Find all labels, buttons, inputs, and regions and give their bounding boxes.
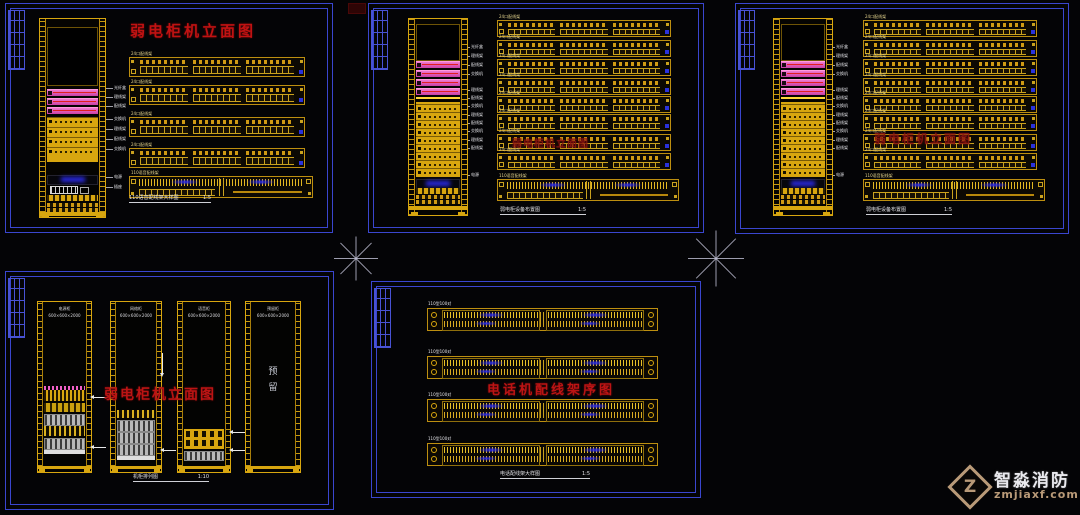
leader-line bbox=[106, 88, 113, 89]
mount-hole-icon bbox=[648, 321, 654, 327]
arrow-head-icon bbox=[229, 430, 233, 434]
leader-line bbox=[106, 106, 113, 107]
cabinet-dims: 600×600×2000 bbox=[38, 313, 91, 318]
watermark-domain: zmjiaxf.com bbox=[994, 488, 1079, 501]
mount-hole-icon bbox=[648, 456, 654, 462]
center-divider bbox=[586, 181, 587, 199]
vent-row bbox=[47, 203, 98, 207]
device-mark bbox=[783, 155, 786, 158]
panel-blue-tag bbox=[299, 70, 303, 74]
blue-smudge bbox=[979, 182, 1009, 188]
device-mark bbox=[783, 123, 786, 126]
port-row-top bbox=[613, 117, 660, 121]
equipment-row-sep bbox=[781, 128, 825, 129]
blue-smudge bbox=[613, 182, 643, 188]
block-half bbox=[442, 358, 540, 379]
device-mark bbox=[783, 171, 786, 174]
leader-line bbox=[833, 90, 835, 91]
port-group bbox=[979, 137, 1026, 148]
port-row-bottom bbox=[979, 162, 1026, 168]
equipment-row-sep bbox=[416, 120, 460, 121]
cable-bar bbox=[966, 194, 1034, 196]
patch-panel bbox=[497, 20, 671, 37]
device-text-marks bbox=[789, 156, 822, 158]
caption-scale: 1:5 bbox=[944, 207, 952, 213]
patch-panel bbox=[497, 78, 671, 95]
port-row-bottom bbox=[926, 162, 973, 168]
port-row-top bbox=[613, 81, 660, 85]
port-groups bbox=[874, 62, 1026, 73]
port-row-bottom bbox=[979, 105, 1026, 111]
port-row-top bbox=[560, 43, 607, 47]
rack-rail-right bbox=[461, 19, 467, 215]
module-red-line bbox=[422, 91, 458, 92]
viewport-top-middle: 24口配线架24口配线架24口配线架24口配线架24口配线架24口配线架24口配… bbox=[368, 3, 704, 233]
panel-end-cap bbox=[865, 162, 870, 167]
drawing-title-p4: 弱电柜机立面图 bbox=[104, 384, 216, 404]
port-holes bbox=[186, 431, 222, 437]
port-row-bottom bbox=[613, 49, 660, 55]
cabinet: 预留柜600×600×2000预留 bbox=[245, 301, 301, 473]
module-red-line bbox=[53, 110, 96, 111]
leader-label: 理线架 bbox=[114, 94, 126, 100]
module-red-line bbox=[787, 91, 823, 92]
rack-module-pink bbox=[781, 88, 825, 95]
device-text-marks bbox=[789, 140, 822, 142]
panel-end-cap bbox=[865, 99, 868, 102]
cabinet-module-ydense bbox=[44, 390, 85, 401]
drawing-title-p3-dim: 弱电柜机立面图 bbox=[874, 130, 972, 147]
port-group bbox=[560, 62, 607, 73]
equipment-row-sep bbox=[781, 120, 825, 121]
panel-blue-tag bbox=[665, 50, 669, 54]
patch-panel bbox=[497, 59, 671, 76]
device-mark bbox=[418, 163, 421, 166]
port-group bbox=[613, 137, 660, 148]
patch-panel bbox=[863, 59, 1037, 76]
110-wiring-block bbox=[497, 179, 679, 201]
equipment-row-sep bbox=[416, 112, 460, 113]
leader-line bbox=[468, 148, 470, 149]
device-text-marks bbox=[789, 116, 822, 118]
port-row-top bbox=[979, 117, 1026, 121]
port-group bbox=[246, 120, 294, 134]
leader-line bbox=[106, 149, 113, 150]
wiring-block-label: 110型100对 bbox=[428, 392, 451, 398]
white-device-box bbox=[50, 186, 78, 194]
panel-blue-tag bbox=[665, 124, 669, 128]
blue-smudge bbox=[581, 312, 609, 318]
blue-smudge bbox=[474, 369, 498, 374]
panel-blue-tag bbox=[1031, 124, 1035, 128]
caption-p5: 电话配线架大样图 1:5 bbox=[500, 470, 590, 479]
leader-label: 交换机 bbox=[836, 71, 848, 77]
port-row-top bbox=[926, 156, 973, 160]
port-row-top bbox=[560, 81, 607, 85]
leader-label: 理线架 bbox=[471, 87, 483, 93]
port-group bbox=[613, 99, 660, 110]
port-row-top bbox=[560, 117, 607, 121]
arrow-head-icon bbox=[160, 373, 164, 377]
port-row-bottom bbox=[979, 49, 1026, 55]
panel-end-cap bbox=[131, 60, 134, 63]
port-group bbox=[193, 60, 241, 74]
port-group bbox=[926, 23, 973, 34]
port-row-top bbox=[560, 99, 607, 103]
arrow-head-icon bbox=[160, 448, 164, 452]
rack-cabinet bbox=[773, 18, 833, 216]
leader-line bbox=[833, 123, 835, 124]
device-text-marks bbox=[424, 132, 457, 134]
port-row-top bbox=[926, 23, 973, 27]
caption-scale: 1:5 bbox=[582, 471, 590, 477]
port-row-top bbox=[246, 88, 294, 92]
block-half bbox=[546, 310, 644, 331]
port-row-top bbox=[508, 23, 555, 27]
cabinet-name: 语音柜 bbox=[178, 306, 230, 312]
leader-line bbox=[233, 432, 245, 433]
equipment-row-sep bbox=[47, 147, 98, 148]
rack-rail-left bbox=[38, 302, 43, 472]
patch-panel bbox=[129, 57, 305, 77]
port-group bbox=[926, 117, 973, 128]
port-row-top bbox=[874, 81, 921, 85]
panel-blue-tag bbox=[665, 69, 669, 73]
teeth-row bbox=[873, 182, 1035, 189]
block-end-cap bbox=[1038, 182, 1043, 187]
port-row-top bbox=[193, 151, 241, 155]
port-row-top bbox=[140, 120, 188, 124]
110-phone-block bbox=[427, 399, 658, 422]
port-group bbox=[874, 23, 921, 34]
port-group bbox=[926, 81, 973, 92]
port-row-bottom bbox=[560, 29, 607, 35]
rack-module-pink bbox=[416, 70, 460, 77]
port-group bbox=[613, 23, 660, 34]
arrow-head-icon bbox=[229, 448, 233, 452]
device-text-marks bbox=[424, 172, 457, 174]
port-row-top bbox=[140, 88, 188, 92]
panel-end-cap bbox=[865, 117, 868, 120]
device-mark bbox=[418, 115, 421, 118]
equipment-row-sep bbox=[416, 160, 460, 161]
cable-bar bbox=[233, 191, 302, 193]
panel-end-cap bbox=[1032, 117, 1035, 120]
caption-text: 110语音配线架大样图 bbox=[129, 194, 179, 201]
rack-foot bbox=[84, 469, 90, 472]
cabinet: 电源柜600×600×2000 bbox=[37, 301, 92, 473]
panel-end-cap bbox=[1032, 99, 1035, 102]
panel-end-cap bbox=[300, 151, 303, 154]
panel-blue-tag bbox=[299, 161, 303, 165]
mount-hole-icon bbox=[431, 403, 437, 409]
leader-line bbox=[468, 106, 470, 107]
bright-separator bbox=[781, 97, 825, 99]
mount-hole-icon bbox=[431, 456, 437, 462]
panel-blue-tag bbox=[1031, 50, 1035, 54]
panel-blue-tag bbox=[299, 130, 303, 134]
port-group bbox=[140, 88, 188, 102]
mount-hole-icon bbox=[431, 360, 437, 366]
panel-end-cap bbox=[300, 60, 303, 63]
panel-blue-tag bbox=[1031, 163, 1035, 167]
port-row-top bbox=[193, 60, 241, 64]
panel-end-cap bbox=[865, 156, 868, 159]
rack-screen bbox=[416, 24, 460, 61]
rack-foot bbox=[247, 469, 253, 472]
leader-label: 配线架 bbox=[114, 103, 126, 109]
equipment-row-sep bbox=[781, 104, 825, 105]
device-mark bbox=[418, 139, 421, 142]
device-text-marks bbox=[55, 151, 95, 153]
caption-text: 机柜排列图 bbox=[133, 473, 158, 480]
panel-blue-tag bbox=[665, 30, 669, 34]
device-text-marks bbox=[789, 148, 822, 150]
port-group bbox=[926, 156, 973, 167]
device-text-marks bbox=[424, 124, 457, 126]
port-row-bottom bbox=[613, 87, 660, 93]
panel-blue-tag bbox=[1031, 69, 1035, 73]
leader-label: 配线架 bbox=[836, 62, 848, 68]
block-end-cap bbox=[672, 182, 677, 187]
rack-foot bbox=[293, 469, 299, 472]
port-row-bottom bbox=[193, 126, 241, 134]
port-groups bbox=[874, 99, 1026, 110]
rack-foot bbox=[823, 212, 830, 215]
leader-label: 理线架 bbox=[836, 137, 848, 143]
port-groups bbox=[508, 99, 660, 110]
block-end-cap bbox=[865, 195, 868, 198]
rack-foot bbox=[223, 469, 229, 472]
leader-label: 配线架 bbox=[114, 136, 126, 142]
center-divider bbox=[540, 403, 541, 418]
panel-end-cap bbox=[666, 117, 669, 120]
teeth-row bbox=[507, 182, 669, 189]
port-row-bottom bbox=[560, 49, 607, 55]
port-row-top bbox=[613, 156, 660, 160]
port-group bbox=[140, 151, 188, 165]
equipment-row-sep bbox=[416, 152, 460, 153]
cabinet-name: 电源柜 bbox=[38, 306, 91, 312]
cabinet-name: 预留柜 bbox=[246, 306, 300, 312]
port-row-top bbox=[613, 43, 660, 47]
patch-panel bbox=[863, 114, 1037, 131]
device-text-marks bbox=[789, 164, 822, 166]
panel-end-cap bbox=[865, 62, 868, 65]
port-groups bbox=[874, 23, 1026, 34]
blue-smudge bbox=[904, 182, 934, 188]
block-half bbox=[442, 310, 540, 331]
patch-panel bbox=[863, 96, 1037, 113]
rack-module-pink bbox=[781, 79, 825, 86]
110-phone-block bbox=[427, 356, 658, 379]
rack-module-strip bbox=[47, 195, 98, 201]
mount-hole-icon bbox=[431, 369, 437, 375]
revision-grid bbox=[371, 10, 388, 70]
panel-end-cap bbox=[499, 156, 502, 159]
equipment-row-sep bbox=[781, 136, 825, 137]
caption-text: 弱电柜设备布置图 bbox=[866, 206, 906, 213]
watermark-logo-icon: Z bbox=[947, 464, 992, 509]
leader-label: 理线架 bbox=[836, 53, 848, 59]
leader-line bbox=[833, 131, 835, 132]
port-row-bottom bbox=[979, 68, 1026, 74]
panel-end-cap bbox=[1032, 156, 1035, 159]
rack-module-pink bbox=[781, 70, 825, 77]
port-group bbox=[560, 156, 607, 167]
port-row-bottom bbox=[613, 162, 660, 168]
port-row-bottom bbox=[246, 94, 294, 102]
equipment-row-sep bbox=[47, 127, 98, 128]
rack-foot bbox=[39, 469, 45, 472]
equipment-row-sep bbox=[416, 144, 460, 145]
leader-line bbox=[468, 47, 470, 48]
panel-blue-tag bbox=[665, 106, 669, 110]
port-row-bottom bbox=[979, 143, 1026, 149]
port-group bbox=[613, 156, 660, 167]
port-row-top bbox=[140, 151, 188, 155]
port-row-top bbox=[979, 43, 1026, 47]
leader-line bbox=[468, 175, 470, 176]
port-row-bottom bbox=[613, 123, 660, 129]
panel-end-cap bbox=[131, 69, 136, 74]
port-row-bottom bbox=[560, 68, 607, 74]
device-mark bbox=[783, 139, 786, 142]
port-groups bbox=[874, 117, 1026, 128]
port-row-top bbox=[246, 120, 294, 124]
revision-grid bbox=[8, 10, 25, 70]
teeth-row bbox=[139, 179, 303, 186]
port-groups bbox=[874, 81, 1026, 92]
blue-smudge bbox=[477, 403, 505, 409]
leader-line bbox=[468, 140, 470, 141]
port-groups bbox=[508, 62, 660, 73]
rack-module-pink bbox=[416, 88, 460, 95]
port-row-top bbox=[560, 156, 607, 160]
port-row-bottom bbox=[926, 68, 973, 74]
blue-smudge bbox=[538, 182, 568, 188]
port-row-top bbox=[613, 99, 660, 103]
port-row-bottom bbox=[613, 143, 660, 149]
panel-end-cap bbox=[499, 99, 502, 102]
arrow-head-icon bbox=[90, 395, 94, 399]
center-divider bbox=[540, 312, 541, 327]
device-text-marks bbox=[55, 141, 95, 143]
rack-module-row bbox=[47, 185, 98, 194]
vent-row bbox=[416, 195, 460, 199]
device-mark bbox=[49, 130, 52, 133]
blue-smudge bbox=[170, 179, 200, 185]
blue-glow bbox=[426, 181, 450, 186]
leader-line bbox=[833, 115, 835, 116]
rack-module-pink bbox=[781, 61, 825, 68]
blue-smudge bbox=[581, 360, 609, 366]
port-group bbox=[613, 62, 660, 73]
bright-separator bbox=[416, 97, 460, 99]
mount-hole-icon bbox=[648, 412, 654, 418]
port-row-top bbox=[508, 62, 555, 66]
port-row-top bbox=[560, 23, 607, 27]
device-text-marks bbox=[424, 140, 457, 142]
port-row-bottom bbox=[873, 192, 949, 199]
module-left-block bbox=[48, 91, 52, 95]
cabinet-dims: 600×600×2000 bbox=[178, 313, 230, 318]
port-row-top bbox=[979, 137, 1026, 141]
rack-module-pink bbox=[47, 89, 98, 96]
cabinet-module-gray bbox=[117, 432, 155, 444]
caption-p3: 弱电柜设备布置图 1:5 bbox=[866, 206, 952, 215]
port-row-bottom bbox=[560, 123, 607, 129]
port-group bbox=[508, 117, 555, 128]
port-row-bottom bbox=[874, 162, 921, 168]
panel-end-cap bbox=[499, 62, 502, 65]
equipment-row-sep bbox=[416, 168, 460, 169]
vent-row bbox=[781, 200, 825, 204]
device-mark bbox=[783, 107, 786, 110]
port-group bbox=[508, 23, 555, 34]
wiring-block-label: 110型100对 bbox=[428, 436, 451, 442]
panel-end-cap bbox=[865, 43, 868, 46]
patch-panel bbox=[497, 114, 671, 131]
port-row-bottom bbox=[979, 87, 1026, 93]
equipment-row-sep bbox=[47, 117, 98, 118]
caption-p1: 110语音配线架大样图 1:5 bbox=[129, 194, 211, 203]
leader-label: 理线架 bbox=[114, 126, 126, 132]
device-text-marks bbox=[789, 172, 822, 174]
snap-marker-icon bbox=[688, 236, 744, 280]
leader-line bbox=[833, 175, 835, 176]
arrow-head-icon bbox=[90, 445, 94, 449]
port-row-top bbox=[979, 62, 1026, 66]
port-group bbox=[140, 60, 188, 74]
panel-blue-tag bbox=[1031, 106, 1035, 110]
panel-end-cap bbox=[499, 162, 504, 167]
110-phone-block bbox=[427, 308, 658, 331]
port-group bbox=[979, 62, 1026, 73]
panel-blue-tag bbox=[1031, 88, 1035, 92]
leader-label: 交换机 bbox=[114, 146, 126, 152]
blue-smudge bbox=[581, 403, 609, 409]
panel-end-cap bbox=[1032, 81, 1035, 84]
mount-hole-icon bbox=[648, 369, 654, 375]
port-row-bottom bbox=[613, 29, 660, 35]
leader-label: 交换机 bbox=[836, 103, 848, 109]
leader-line bbox=[233, 450, 245, 451]
patch-panel bbox=[129, 117, 305, 137]
device-text-marks bbox=[424, 108, 457, 110]
patch-panel bbox=[129, 85, 305, 105]
module-left-block bbox=[48, 109, 52, 113]
leader-label: 理线架 bbox=[471, 53, 483, 59]
port-row-top bbox=[508, 156, 555, 160]
block-end-cap bbox=[306, 179, 311, 184]
panel-end-cap bbox=[499, 81, 502, 84]
module-left-block bbox=[417, 90, 421, 94]
cabinet-module-gray bbox=[44, 438, 85, 450]
blue-smudge bbox=[578, 456, 602, 461]
module-left-block bbox=[417, 63, 421, 67]
center-divider bbox=[543, 360, 544, 375]
leader-line bbox=[468, 115, 470, 116]
port-row-top bbox=[979, 81, 1026, 85]
port-row-top bbox=[874, 23, 921, 27]
cabinet-module-ports bbox=[184, 429, 224, 449]
equipment-row-sep bbox=[781, 160, 825, 161]
cabinet-module-gray bbox=[117, 444, 155, 456]
panel-end-cap bbox=[865, 81, 868, 84]
device-mark bbox=[49, 120, 52, 123]
110-wiring-block bbox=[863, 179, 1045, 201]
